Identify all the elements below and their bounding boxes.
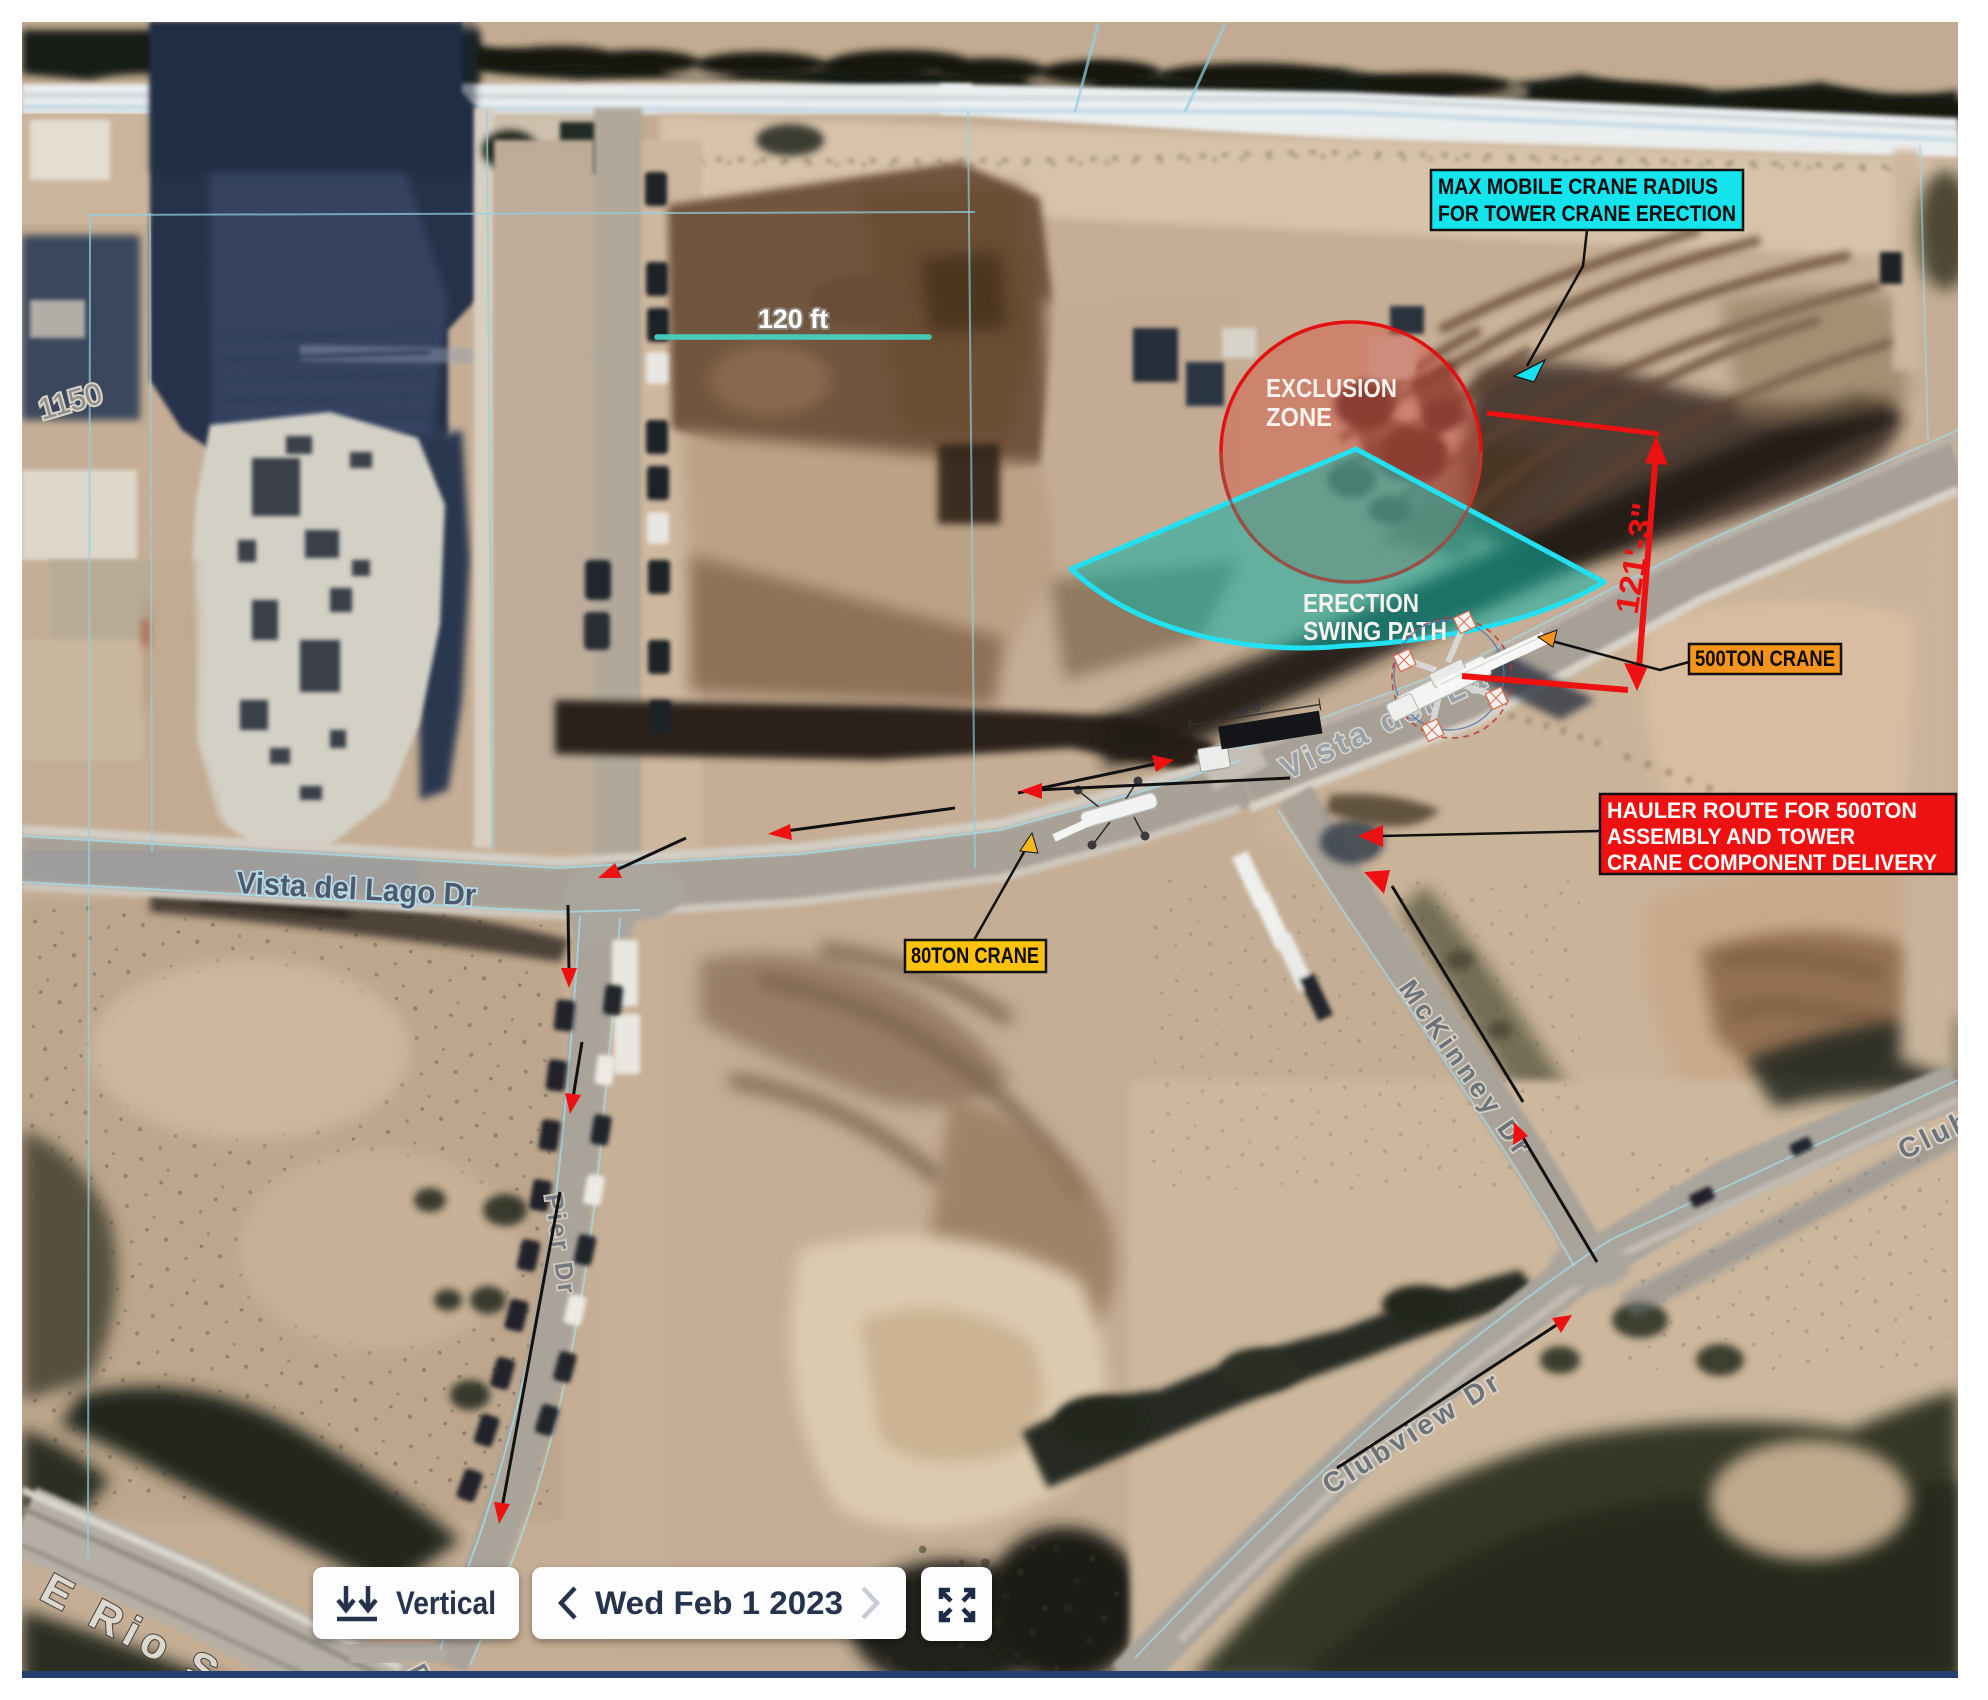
svg-text:ZONE: ZONE — [1266, 402, 1332, 432]
svg-text:FOR TOWER CRANE ERECTION: FOR TOWER CRANE ERECTION — [1438, 201, 1736, 226]
svg-text:120 ft: 120 ft — [758, 304, 828, 334]
svg-text:SWING PATH: SWING PATH — [1303, 616, 1447, 646]
svg-text:CRANE COMPONENT DELIVERY: CRANE COMPONENT DELIVERY — [1607, 850, 1937, 875]
svg-text:500TON CRANE: 500TON CRANE — [1695, 646, 1835, 671]
svg-text:Wed Feb 1 2023: Wed Feb 1 2023 — [595, 1585, 843, 1621]
svg-text:HAULER ROUTE FOR 500TON: HAULER ROUTE FOR 500TON — [1607, 798, 1917, 823]
svg-text:ASSEMBLY AND TOWER: ASSEMBLY AND TOWER — [1607, 824, 1855, 849]
svg-text:80TON CRANE: 80TON CRANE — [911, 943, 1039, 968]
svg-text:MAX MOBILE CRANE RADIUS: MAX MOBILE CRANE RADIUS — [1438, 174, 1718, 199]
svg-text:ERECTION: ERECTION — [1303, 588, 1419, 618]
svg-text:EXCLUSION: EXCLUSION — [1266, 373, 1397, 403]
svg-text:Vertical: Vertical — [396, 1585, 496, 1621]
